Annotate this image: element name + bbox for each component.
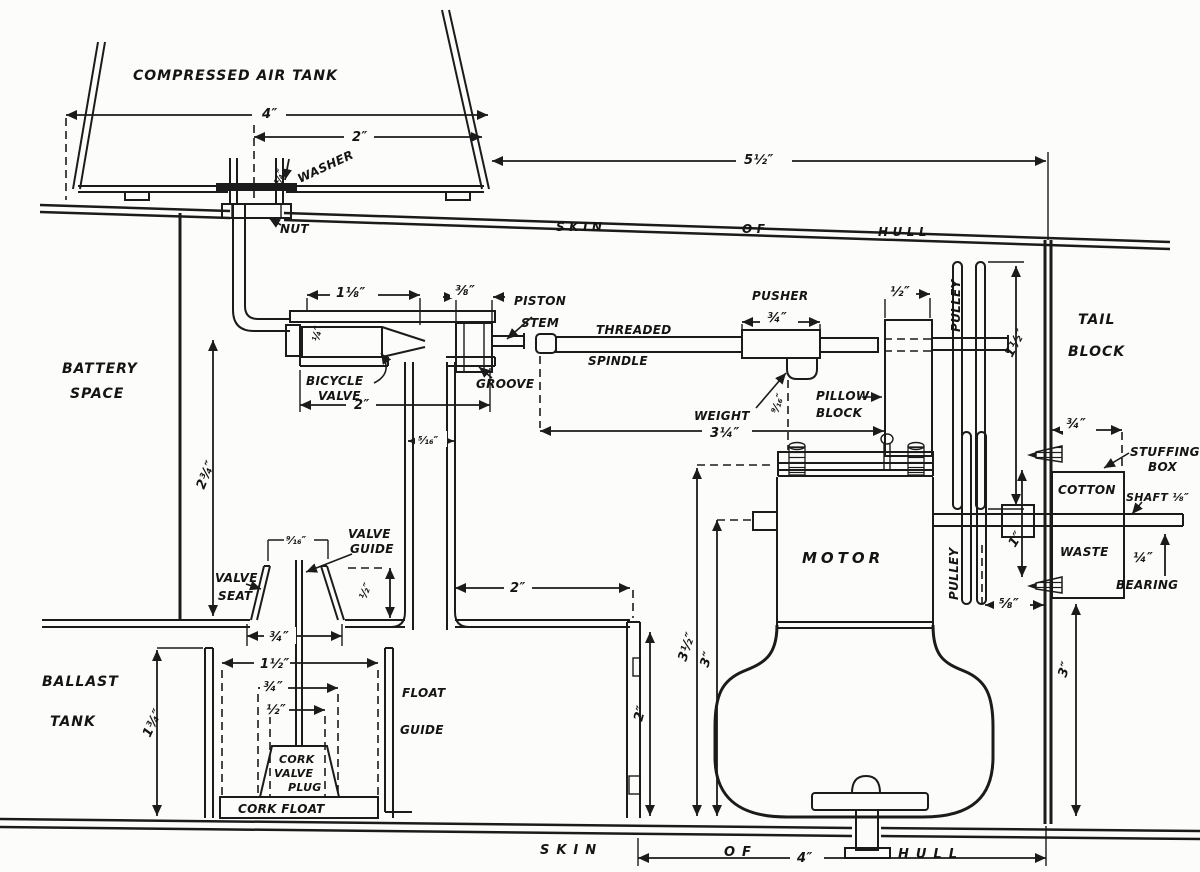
label-valve-guide1: VALVE [348,527,391,541]
label-space: SPACE [70,386,124,402]
groove-part [456,323,492,372]
motor-terminal-part [753,512,777,530]
label-battery: BATTERY [62,361,139,377]
label-pusher: PUSHER [752,289,808,303]
dim-spindle-span: 3¼″ [710,426,740,441]
lower-pulley-part [962,432,971,604]
label-ballast-tank: TANK [50,714,96,730]
dim-shaft-length: 1″ [1006,529,1027,550]
label-compressed-air-tank: COMPRESSED AIR TANK [133,68,338,84]
label-tail: TAIL [1078,312,1115,328]
dim-valve-bore: ¼″ [310,325,325,343]
dim-motor-height2: 3″ [698,650,717,670]
label-valve-seat1: VALVE [215,571,258,585]
submarine-mechanism-diagram: COMPRESSED AIR TANK WASHER ¼″ NUT SKIN O… [0,0,1200,872]
piston-stem-part [492,333,524,349]
label-pulley-upper: PULLEY [949,278,963,332]
label-piston: PISTON [514,294,566,308]
label-threaded: THREADED [596,323,671,337]
dim-seat-top: ⁹⁄₁₆″ [286,535,307,547]
dim-weight-drop: ⁹⁄₁₆″ [769,392,787,415]
dim-motor-height1: 3½″ [676,630,699,663]
dim-float-height: 1¾″ [140,706,166,739]
dim-float-w2: ¾″ [263,680,283,695]
label-spindle: SPINDLE [588,354,648,368]
dim-groove-width: ⅜″ [455,284,475,299]
dim-valve-length: 1⅛″ [336,286,366,301]
dim-tank-neck: 2″ [352,130,368,145]
dim-stuffing-width: ¾″ [1066,417,1086,432]
label-waste: WASTE [1060,545,1109,559]
dim-tube-width: ⁵⁄₁₆″ [418,435,439,447]
dim-tank-width: 4″ [261,107,278,122]
diagram-canvas: COMPRESSED AIR TANK WASHER ¼″ NUT SKIN O… [0,0,1200,872]
dim-tail-height: 3″ [1056,660,1075,680]
label-bearing: BEARING [1116,578,1178,592]
label-pillow-block: BLOCK [816,406,864,420]
dim-tube-span: 2″ [510,581,526,596]
label-stem: STEM [521,316,559,330]
label-weight: WEIGHT [694,409,750,423]
label-skin-top: SKIN [556,220,606,234]
label-shaft-eighth: SHAFT ⅛″ [1126,491,1189,504]
hull-skin-bottom [0,819,1200,839]
dimension-lines [66,115,1165,858]
dim-float-w3: ½″ [266,703,286,718]
motor-part [715,434,993,817]
label-skin-bottom: SKIN [540,843,603,858]
label-nut: NUT [280,222,309,236]
tail-block-wall [1045,152,1051,824]
label-pulley-lower: PULLEY [947,546,961,600]
label-of-bottom: OF [724,845,758,860]
label-stuffing: STUFFING [1130,445,1200,459]
label-stuffing-box: BOX [1148,460,1178,474]
label-cotton: COTTON [1058,483,1116,497]
label-float: FLOAT [402,686,446,700]
pusher-part [742,330,820,358]
label-of-top: OF [742,222,769,236]
dim-pillow-width: ½″ [890,285,910,300]
washer-part [216,183,297,191]
dim-guide-wall: 2″ [631,704,650,723]
dim-seat-bottom: ¾″ [269,630,289,645]
dim-pusher-width: ¾″ [767,311,787,326]
dim-bearing-thickness: ¼″ [1133,551,1153,566]
label-hull-bottom: HULL [898,847,964,862]
label-motor: MOTOR [802,549,884,567]
weight-hook-part [787,358,817,379]
label-bicycle: BICYCLE [306,374,364,388]
label-valve-guide2: GUIDE [350,542,394,556]
label-washer: WASHER [295,148,355,186]
dim-guide-height: ½″ [357,581,375,601]
label-float-guide: GUIDE [400,723,444,737]
dim-pulley-diameter: 1½″ [1002,327,1029,360]
label-tail-block: BLOCK [1068,344,1125,360]
label-hull-top: HULL [878,225,931,239]
valve-tube [391,362,469,630]
dim-float-w1: 1½″ [260,657,290,672]
stuffing-box-part [1027,446,1124,598]
label-cork1: CORK [279,753,316,766]
label-pillow: PILLOW [816,389,870,403]
valve-stem-rod [296,560,302,746]
label-cork-float: CORK FLOAT [238,802,325,816]
dim-motor-base: 4″ [796,851,813,866]
dim-valve-drop: 2¾″ [194,458,219,491]
label-groove: GROOVE [476,377,535,391]
label-cork2: VALVE [274,767,313,780]
dim-pulley-gap: ⅝″ [999,597,1019,612]
dim-valve-body: 2″ [354,398,370,413]
text-labels: COMPRESSED AIR TANK WASHER ¼″ NUT SKIN O… [42,68,1200,866]
label-valve-seat2: SEAT [218,589,253,603]
label-cork3: PLUG [288,781,322,794]
dim-hull-span: 5½″ [744,153,774,168]
label-ballast: BALLAST [42,674,119,690]
